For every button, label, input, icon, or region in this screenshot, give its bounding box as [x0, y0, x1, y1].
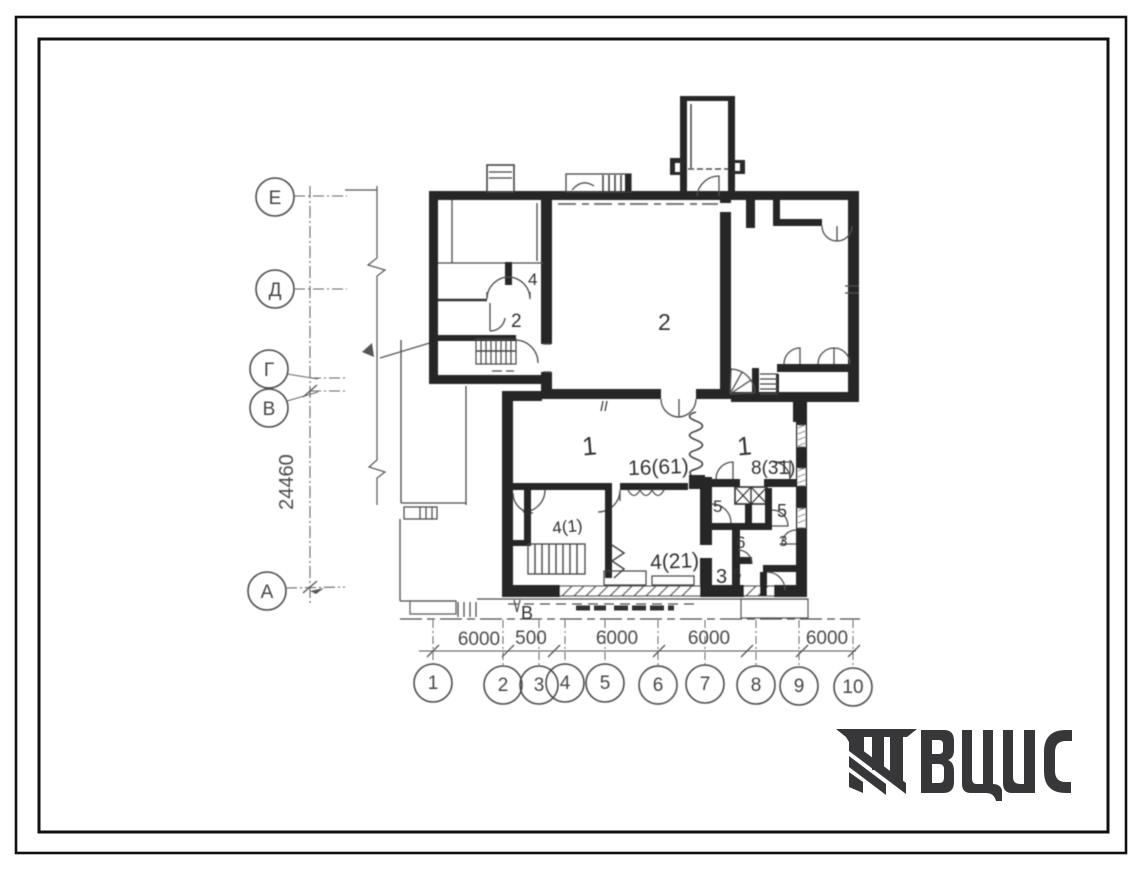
svg-text:16(61): 16(61) — [628, 455, 689, 480]
svg-text:10: 10 — [842, 677, 863, 698]
svg-text:3: 3 — [534, 675, 545, 696]
svg-text:4: 4 — [528, 270, 537, 289]
svg-text:8: 8 — [751, 675, 762, 696]
svg-text:5: 5 — [777, 501, 787, 521]
svg-text:5: 5 — [600, 673, 611, 694]
svg-text:7: 7 — [700, 674, 711, 695]
svg-text:4: 4 — [560, 673, 571, 694]
svg-text:Г: Г — [264, 360, 274, 381]
svg-text:6: 6 — [736, 533, 745, 552]
svg-text:5: 5 — [713, 497, 722, 516]
svg-text:В: В — [521, 603, 533, 623]
svg-text:6000: 6000 — [688, 628, 730, 649]
svg-text:4(1): 4(1) — [551, 516, 583, 538]
svg-text:В: В — [263, 399, 276, 420]
svg-text:24460: 24460 — [276, 454, 298, 510]
svg-text:500: 500 — [515, 628, 547, 649]
svg-text:1: 1 — [428, 673, 439, 694]
svg-text:6000: 6000 — [458, 629, 500, 650]
svg-text:А: А — [261, 582, 274, 603]
svg-text:5: 5 — [733, 566, 741, 583]
svg-text:2: 2 — [511, 311, 522, 332]
svg-text:1: 1 — [736, 430, 753, 461]
svg-text:2: 2 — [498, 675, 509, 696]
svg-text:4(21): 4(21) — [650, 549, 700, 575]
svg-text:6000: 6000 — [806, 628, 848, 649]
svg-text:6000: 6000 — [596, 628, 638, 649]
svg-text:3: 3 — [779, 533, 787, 550]
svg-text:3: 3 — [716, 566, 727, 588]
svg-text:Д: Д — [269, 280, 282, 301]
svg-text:2: 2 — [658, 309, 671, 335]
svg-text:1: 1 — [581, 430, 598, 461]
svg-text:Е: Е — [269, 188, 282, 209]
svg-text:6: 6 — [653, 675, 664, 696]
svg-text:8(31): 8(31) — [751, 458, 795, 479]
svg-text:9: 9 — [794, 676, 805, 697]
